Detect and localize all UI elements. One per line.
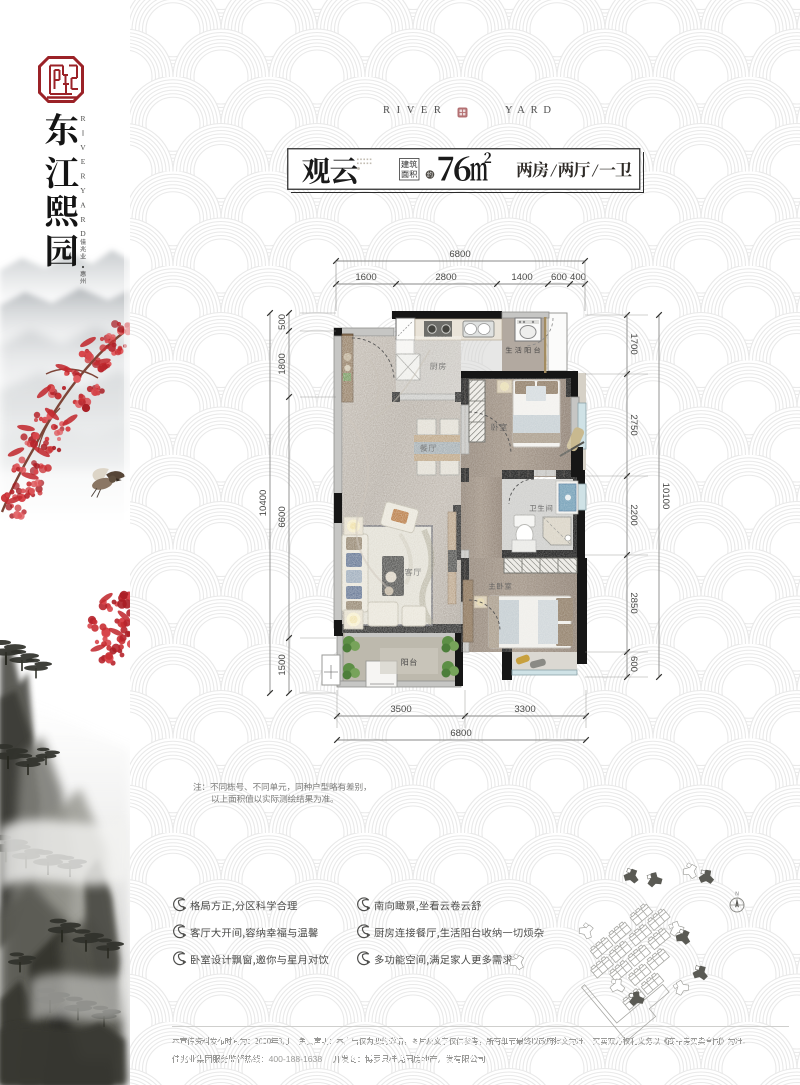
svg-text:D: D <box>80 229 86 238</box>
svg-text:R: R <box>80 172 85 181</box>
svg-text:Y: Y <box>80 186 86 195</box>
svg-text:I: I <box>82 128 85 137</box>
svg-text:A: A <box>80 200 86 209</box>
svg-text:R: R <box>80 215 85 224</box>
svg-text:V: V <box>80 143 86 152</box>
svg-text:R: R <box>80 114 85 123</box>
svg-text:E: E <box>81 157 86 166</box>
